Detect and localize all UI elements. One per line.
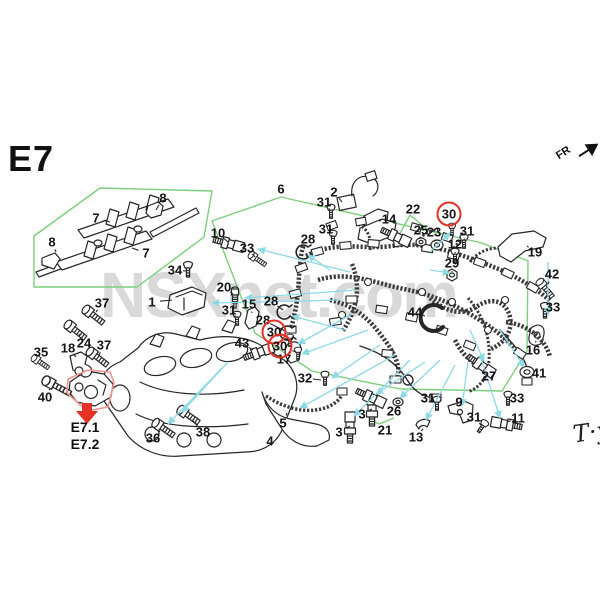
label-leader-15: [252, 312, 253, 313]
label-leader-16: [536, 341, 537, 342]
module-1: [168, 287, 206, 315]
parts-diagram-page: NSXnet.com: [0, 0, 600, 600]
artist-signature: T·y: [571, 416, 600, 449]
label-leader-37: [99, 352, 100, 355]
fr-direction-arrow: [575, 138, 600, 162]
label-leader-37: [96, 310, 98, 312]
clamp-13: [416, 419, 430, 429]
label-leader-8: [55, 249, 56, 252]
part-drawings: [30, 171, 556, 457]
label-leader-40: [49, 389, 50, 390]
fuel-rail-drawing: [36, 195, 199, 277]
page-code: E7: [8, 138, 54, 180]
bracket-15: [245, 307, 259, 329]
subdiagram-ref-e7-1: E7.1: [71, 419, 100, 436]
label-leader-31: [435, 402, 436, 403]
label-leader-32: [313, 379, 321, 380]
subdiagram-reference: E7.1 E7.2: [71, 419, 100, 453]
subdiagram-ref-e7-2: E7.2: [71, 436, 100, 453]
diagram-artwork: [0, 0, 600, 600]
label-leader-7: [132, 248, 139, 250]
label-leader-13: [421, 429, 423, 431]
label-leader-31: [331, 235, 332, 236]
label-leader-31: [464, 239, 465, 240]
grommet-41: [520, 367, 534, 378]
bracket-19: [498, 231, 546, 262]
